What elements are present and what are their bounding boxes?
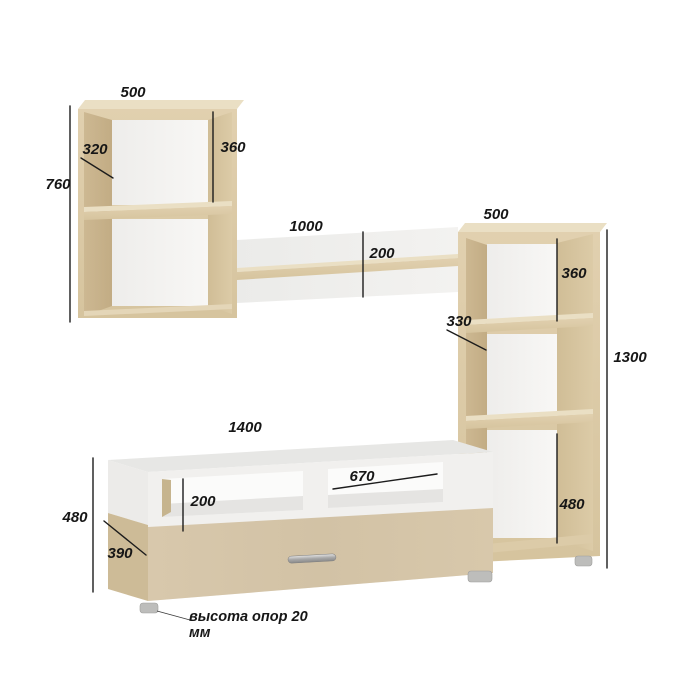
support-note-line1: высота опор 20 — [189, 609, 308, 625]
tall-unit-back-bottom — [487, 430, 557, 538]
dim-label-cabinet-height: 760 — [45, 176, 71, 193]
dim-label-cabinet-depth: 320 — [82, 141, 108, 158]
wall-cabinet-back-bottom — [112, 219, 208, 306]
tall-unit-back-top — [487, 244, 557, 320]
support-note-leader-line — [157, 611, 190, 620]
wall-cabinet-top-face — [78, 100, 244, 109]
support-note: высота опор 20 мм — [189, 609, 308, 641]
tv-stand-foot-right — [468, 571, 492, 582]
tv-stand-foot-left — [140, 603, 158, 613]
furniture-dimension-diagram: 500 760 320 360 1000 200 500 360 330 130… — [0, 0, 700, 700]
tall-unit-foot — [575, 556, 592, 566]
dim-label-unit-height: 1300 — [613, 349, 647, 366]
dim-label-stand-length: 1400 — [228, 419, 262, 436]
dim-label-unit-depth: 330 — [446, 313, 472, 330]
dim-label-cabinet-width: 500 — [120, 84, 146, 101]
dim-label-unit-width: 500 — [483, 206, 509, 223]
tall-unit-top-face — [458, 223, 607, 232]
dim-label-shelf-length: 1000 — [289, 218, 323, 235]
dim-label-unit-bottom-opening: 480 — [558, 496, 585, 513]
tv-stand — [108, 440, 493, 613]
dim-label-cabinet-opening: 360 — [220, 139, 246, 156]
dim-label-shelf-height: 200 — [368, 245, 395, 262]
tall-unit-back-middle — [487, 334, 557, 416]
dim-label-niche-width: 670 — [349, 468, 375, 485]
wall-cabinet-back-top — [112, 120, 208, 205]
tv-stand-left-niche-side — [162, 479, 171, 517]
dim-label-stand-depth: 390 — [107, 545, 133, 562]
support-note-line2: мм — [189, 625, 211, 641]
dim-label-stand-height: 480 — [61, 509, 88, 526]
dim-label-niche-height: 200 — [189, 493, 216, 510]
dim-label-unit-top-opening: 360 — [561, 265, 587, 282]
diagram-svg: 500 760 320 360 1000 200 500 360 330 130… — [0, 0, 700, 700]
wall-cabinet — [78, 100, 244, 318]
wall-shelf — [237, 227, 458, 303]
